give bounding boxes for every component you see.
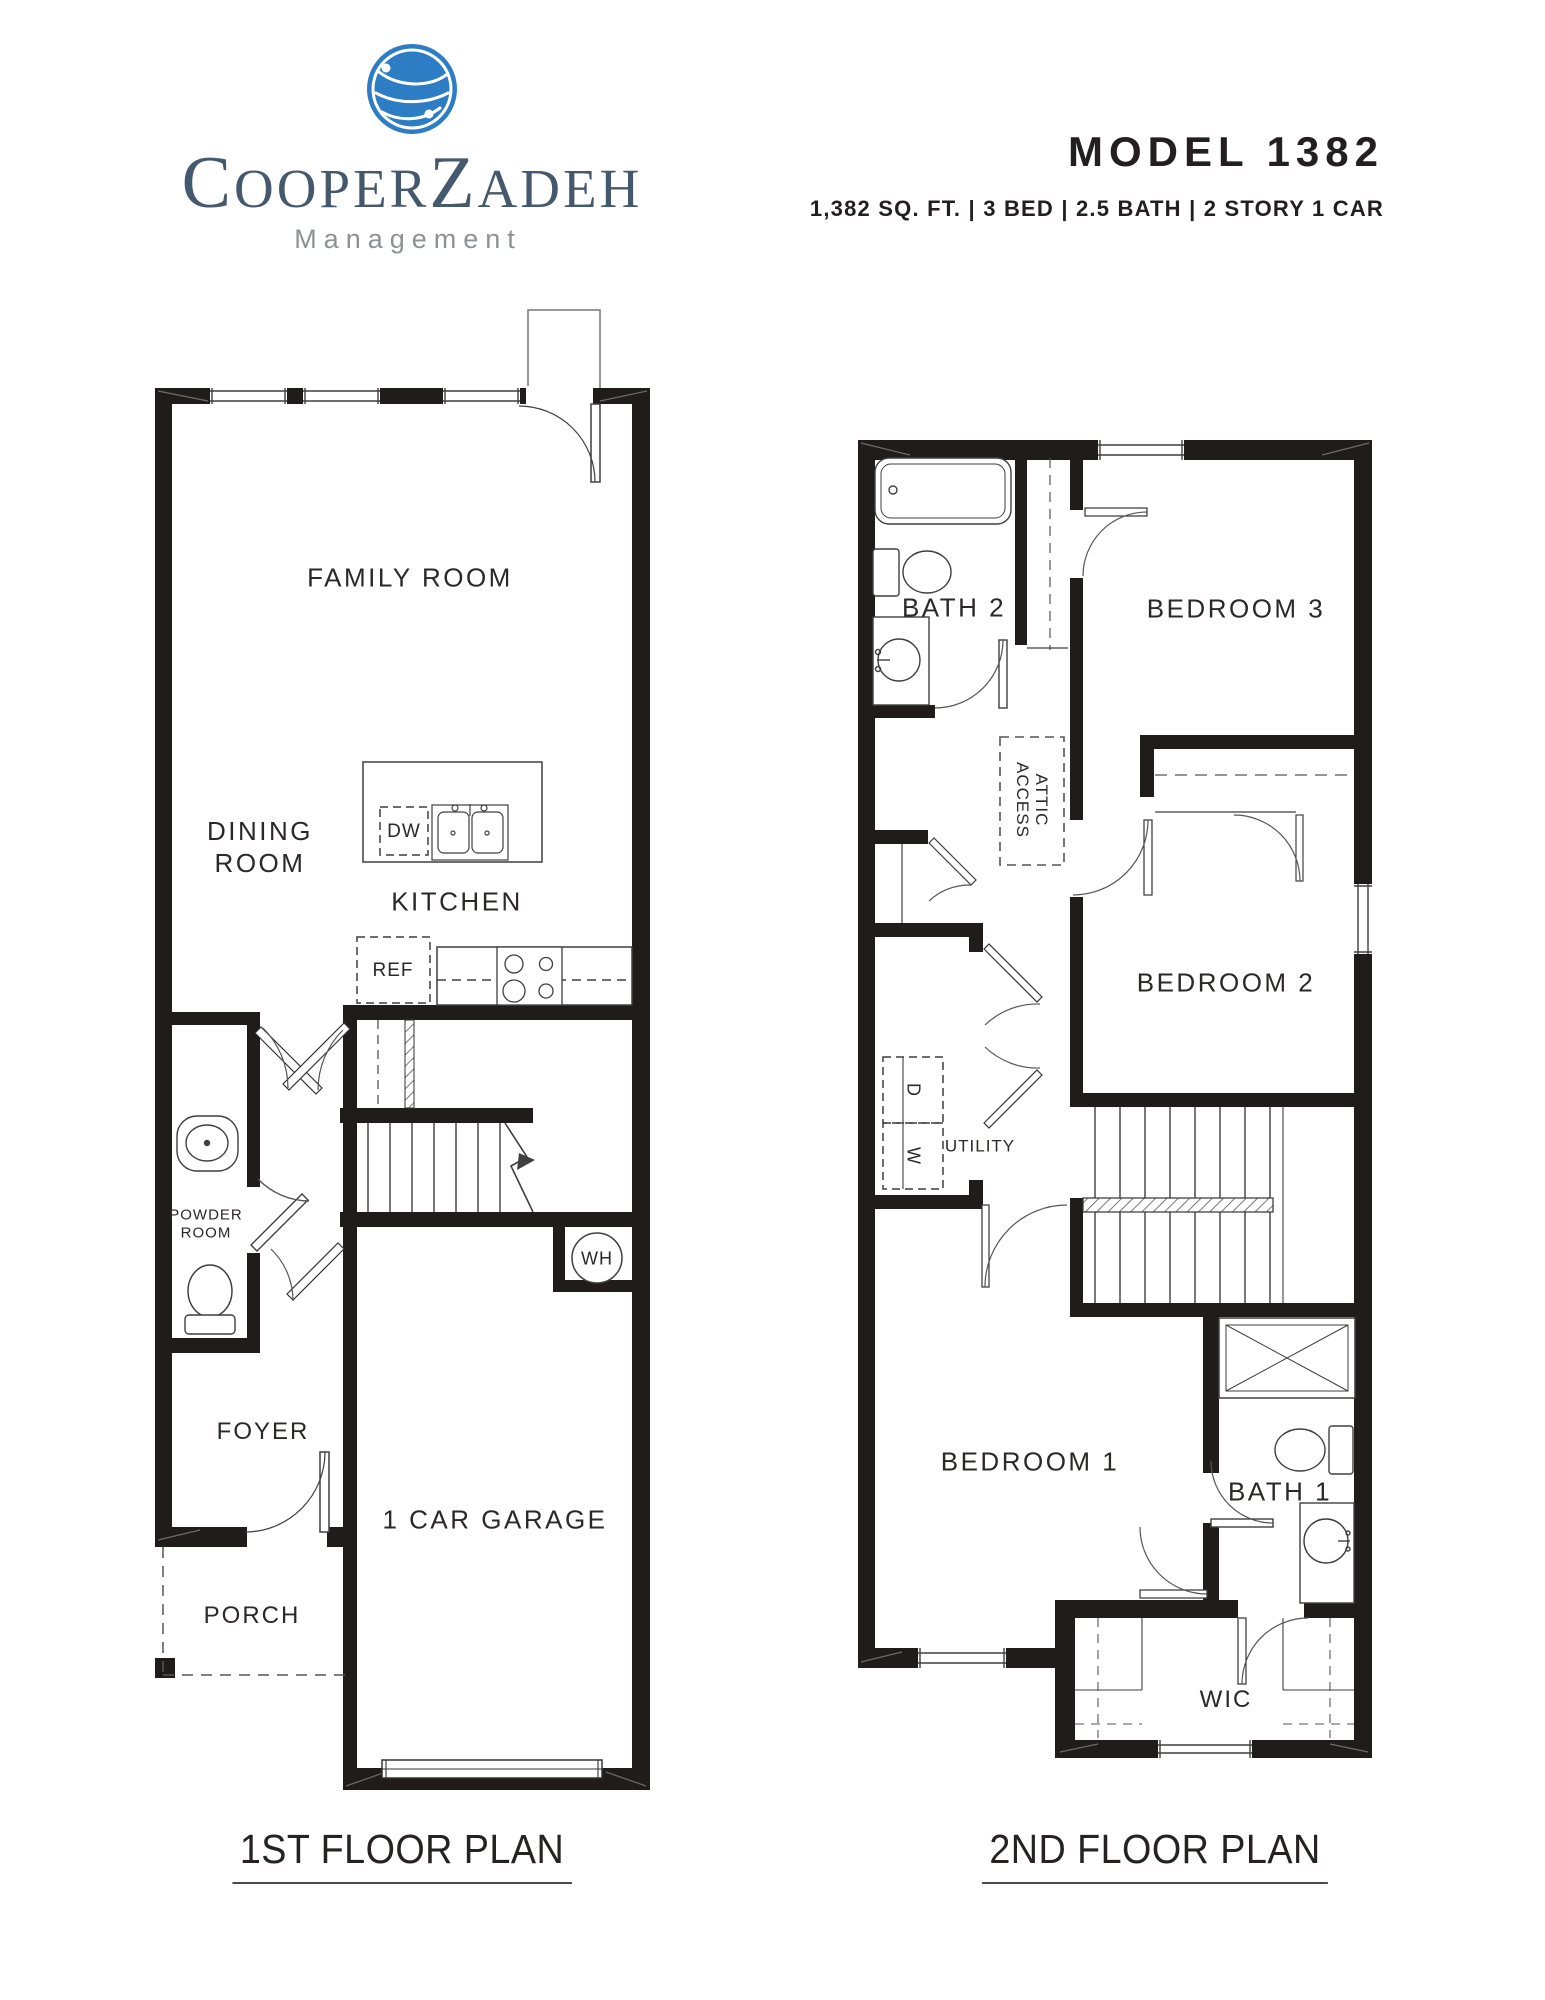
washer-label: W: [903, 1147, 924, 1165]
family-room-label: FAMILY ROOM: [307, 563, 513, 594]
water-heater-label: WH: [581, 1249, 613, 1270]
powder-room-label-line2: ROOM: [169, 1224, 243, 1242]
attic-access-label: ATTICACCESS: [1013, 762, 1051, 838]
flyer-page: COOPERZADEH Management MODEL 1382 1,382 …: [0, 0, 1545, 2000]
refrigerator-label: REF: [373, 960, 414, 982]
bedroom2-label: BEDROOM 2: [1137, 968, 1316, 999]
bedroom1-door: [982, 1205, 1067, 1287]
bath2-fixtures: [873, 458, 1011, 708]
bathtub: [875, 458, 1011, 524]
dishwasher-label: DW: [387, 821, 421, 843]
powder-room-label: POWDERROOM: [169, 1207, 243, 1242]
floor2-plan: [858, 438, 1374, 1760]
stair-railing: [1083, 1198, 1273, 1212]
hall-half-wall: [405, 1020, 414, 1108]
dryer-label: D: [903, 1083, 924, 1097]
floor2-stairs: [1083, 1107, 1283, 1303]
hall-double-doors: [255, 1023, 350, 1094]
foyer-label: FOYER: [217, 1418, 310, 1446]
kitchen-label: KITCHEN: [391, 887, 523, 918]
dining-room-label-line1: DINING: [207, 815, 313, 847]
shower: [1219, 1318, 1355, 1398]
bath1-toilet: [1275, 1426, 1353, 1474]
floor1-plan: [155, 310, 650, 1790]
floor1-walls: [155, 388, 650, 1790]
wic-label: WIC: [1200, 1686, 1253, 1714]
floor2-caption: 2ND FLOOR PLAN: [982, 1826, 1328, 1884]
bath2-door: [935, 640, 1007, 708]
entry-door: [519, 404, 600, 482]
bath2-label: BATH 2: [902, 593, 1006, 624]
powder-door: [251, 1179, 309, 1251]
garage-label: 1 CAR GARAGE: [382, 1505, 607, 1536]
powder-toilet: [185, 1265, 235, 1334]
bath1-label: BATH 1: [1228, 1477, 1332, 1508]
kitchen-island: [363, 762, 542, 862]
floor2-walls: [858, 440, 1372, 1758]
utility-label: UTILITY: [945, 1137, 1015, 1156]
dining-room-label-line2: ROOM: [207, 847, 313, 879]
porch-label: PORCH: [204, 1602, 301, 1630]
bath1-fixtures: [1211, 1318, 1355, 1603]
attic-access-label-line1: ATTIC: [1032, 762, 1051, 838]
garage-door: [382, 1760, 602, 1778]
attic-access-label-line2: ACCESS: [1013, 762, 1032, 838]
wall-corner-accents: [158, 391, 647, 1786]
bath1-sink: [1300, 1503, 1354, 1603]
wic-shelving: [1075, 1618, 1354, 1738]
powder-room-label-line1: POWDER: [169, 1207, 243, 1225]
entry-stoop: [528, 310, 600, 390]
bath2-sink: [873, 617, 929, 705]
wic-door: [1238, 1618, 1308, 1684]
landing-door: [1140, 1527, 1207, 1598]
powder-sink: [177, 1116, 238, 1171]
bedroom1-label: BEDROOM 1: [941, 1447, 1120, 1478]
dining-room-label: DININGROOM: [207, 815, 313, 879]
bedroom2-closet: [1155, 775, 1350, 881]
bedroom3-label: BEDROOM 3: [1147, 594, 1326, 625]
hall-foyer-door: [271, 1243, 344, 1301]
floor1-stairs: [368, 1123, 535, 1212]
front-door: [245, 1452, 329, 1532]
bedroom3-door: [1083, 508, 1147, 576]
bedroom2-door: [1073, 820, 1152, 895]
floor1-caption: 1ST FLOOR PLAN: [232, 1826, 571, 1884]
floorplan-drawing: [0, 0, 1545, 2000]
stove: [497, 947, 562, 1005]
bath2-toilet: [873, 549, 951, 596]
utility-doors: [984, 944, 1042, 1128]
